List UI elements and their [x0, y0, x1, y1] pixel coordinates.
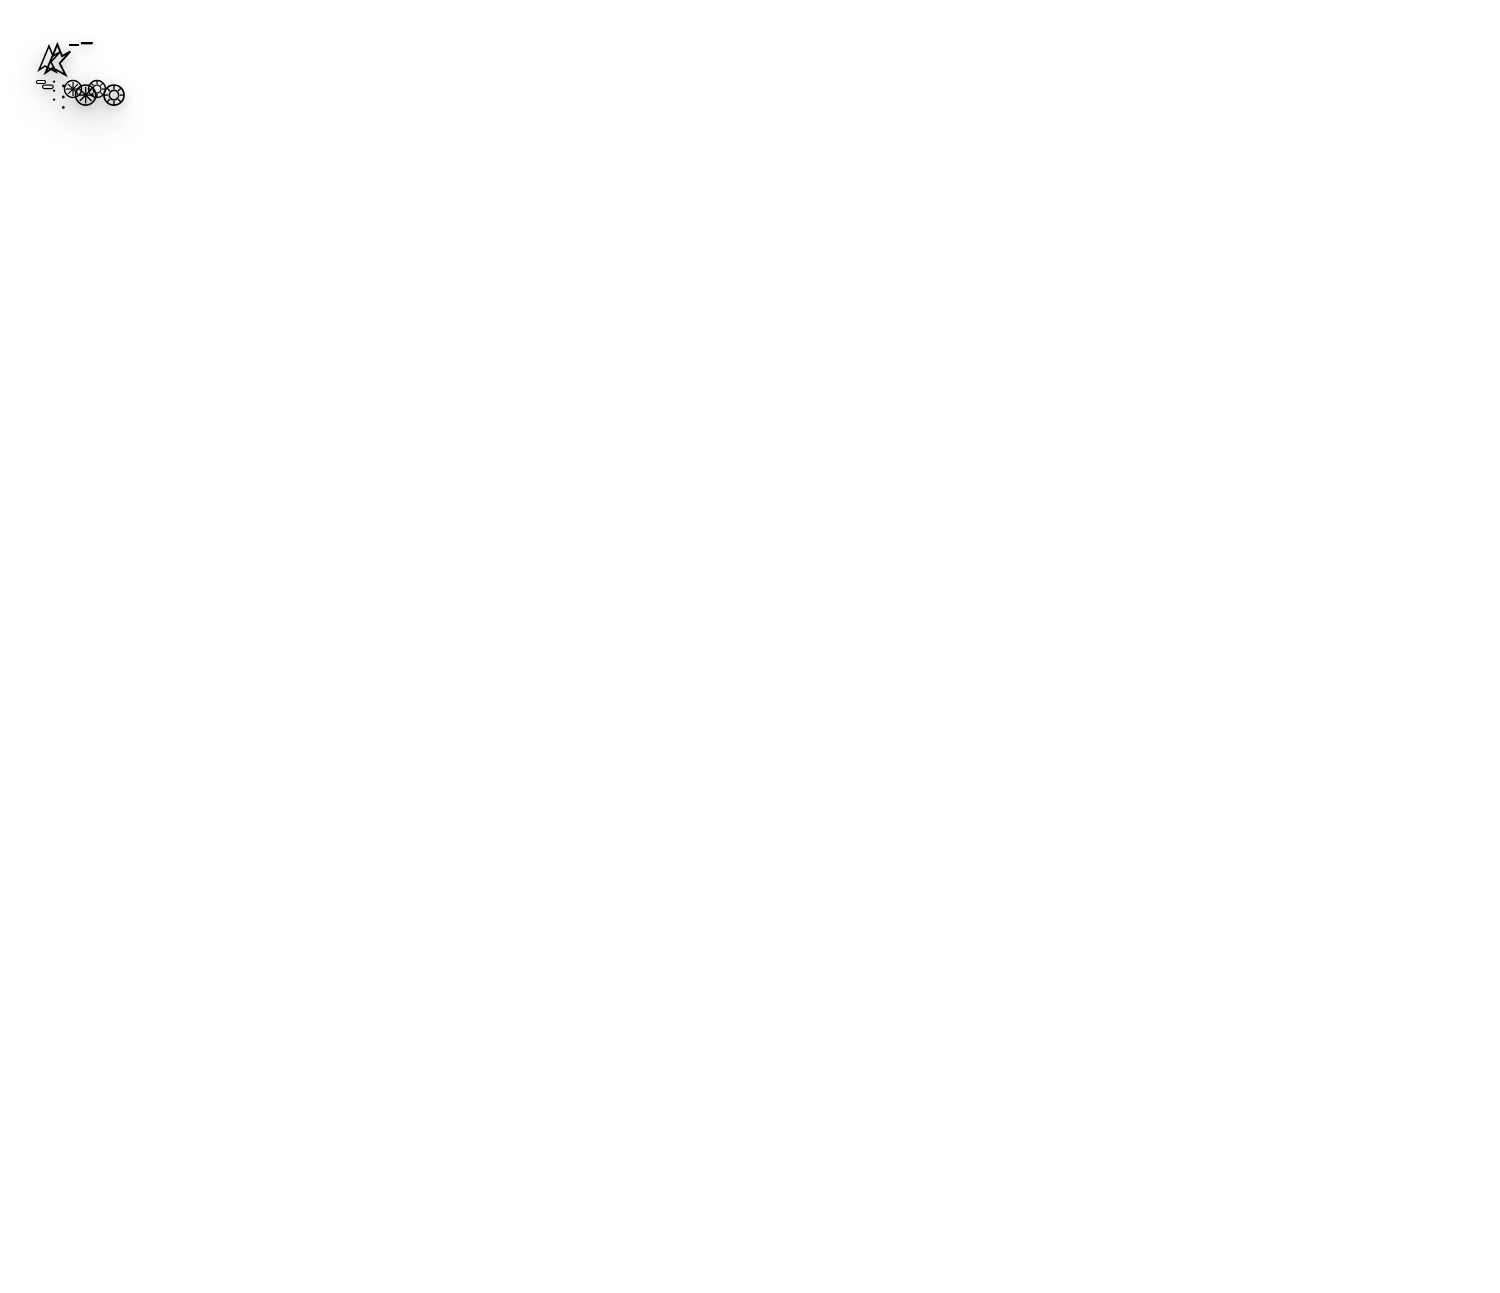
front-mat-grid	[0, 0, 300, 150]
product-photo	[0, 0, 1500, 1293]
front-cutting-mat-a2	[0, 0, 300, 150]
